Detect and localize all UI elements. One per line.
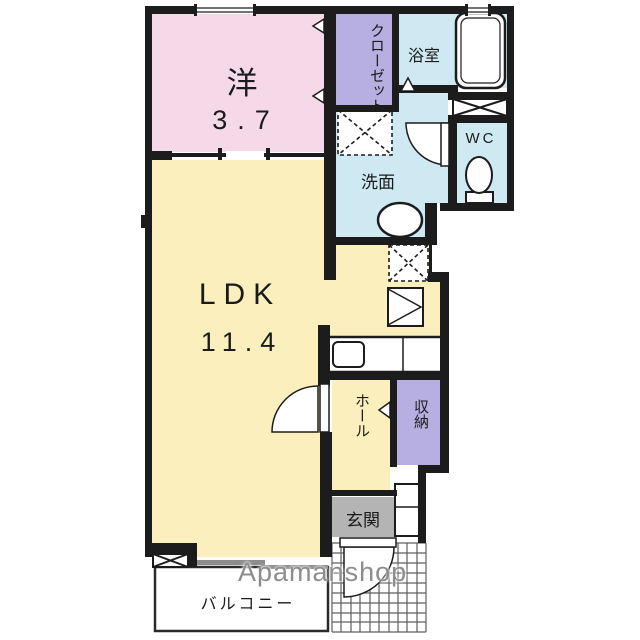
entrance-label: 玄関 <box>346 506 380 531</box>
ldk-label: LDK <box>199 278 281 312</box>
wall <box>318 372 443 380</box>
fridge-space <box>389 245 428 281</box>
window-western-room <box>196 6 254 14</box>
shoe-cabinet <box>395 484 419 536</box>
bathtub <box>456 13 505 88</box>
wall <box>448 92 514 100</box>
appliance-box <box>388 288 423 326</box>
watermark: Apamanshop <box>238 557 407 588</box>
wall <box>418 465 426 543</box>
western-room-size: 3.7 <box>212 105 280 136</box>
ldk-size: 11.4 <box>201 327 284 358</box>
washbasin <box>378 203 422 237</box>
floorplan-drawing <box>0 0 640 640</box>
corner-x-box <box>153 554 188 567</box>
washroom-label: 洗面 <box>361 168 395 193</box>
door-leaf-washroom <box>441 123 449 166</box>
wall <box>390 376 397 467</box>
sliding-door-western <box>226 151 264 158</box>
storage-label: 収納 <box>410 399 431 443</box>
wall <box>330 105 399 112</box>
window-bathroom <box>467 6 489 14</box>
wall <box>141 215 152 228</box>
hall-label: ホール <box>351 393 372 459</box>
toilet-bowl <box>466 157 492 193</box>
wc-label: WC <box>466 130 497 147</box>
wall <box>320 432 332 557</box>
utility-x-box <box>453 99 507 116</box>
wall <box>440 203 514 211</box>
wall <box>145 6 152 557</box>
kitchen-sink <box>333 342 364 367</box>
closet-label: クローゼット <box>337 23 387 81</box>
wall <box>145 151 172 160</box>
wall <box>448 115 514 123</box>
washing-machine-space <box>338 110 392 155</box>
entrance-step <box>332 490 397 496</box>
western-room-label: 洋 <box>227 58 258 103</box>
door-leaf-ldk <box>320 384 329 432</box>
bathroom-label: 浴室 <box>408 42 440 66</box>
door-leaf-entrance <box>340 538 396 547</box>
ldk-floor <box>152 160 324 557</box>
floorplan: 洋 3.7 クローゼット 浴室 WC 洗面 LDK 11.4 ホール 収納 玄関… <box>0 0 640 640</box>
wall <box>507 6 514 211</box>
balcony-label: バルコニー <box>201 590 296 614</box>
wall <box>330 237 437 245</box>
